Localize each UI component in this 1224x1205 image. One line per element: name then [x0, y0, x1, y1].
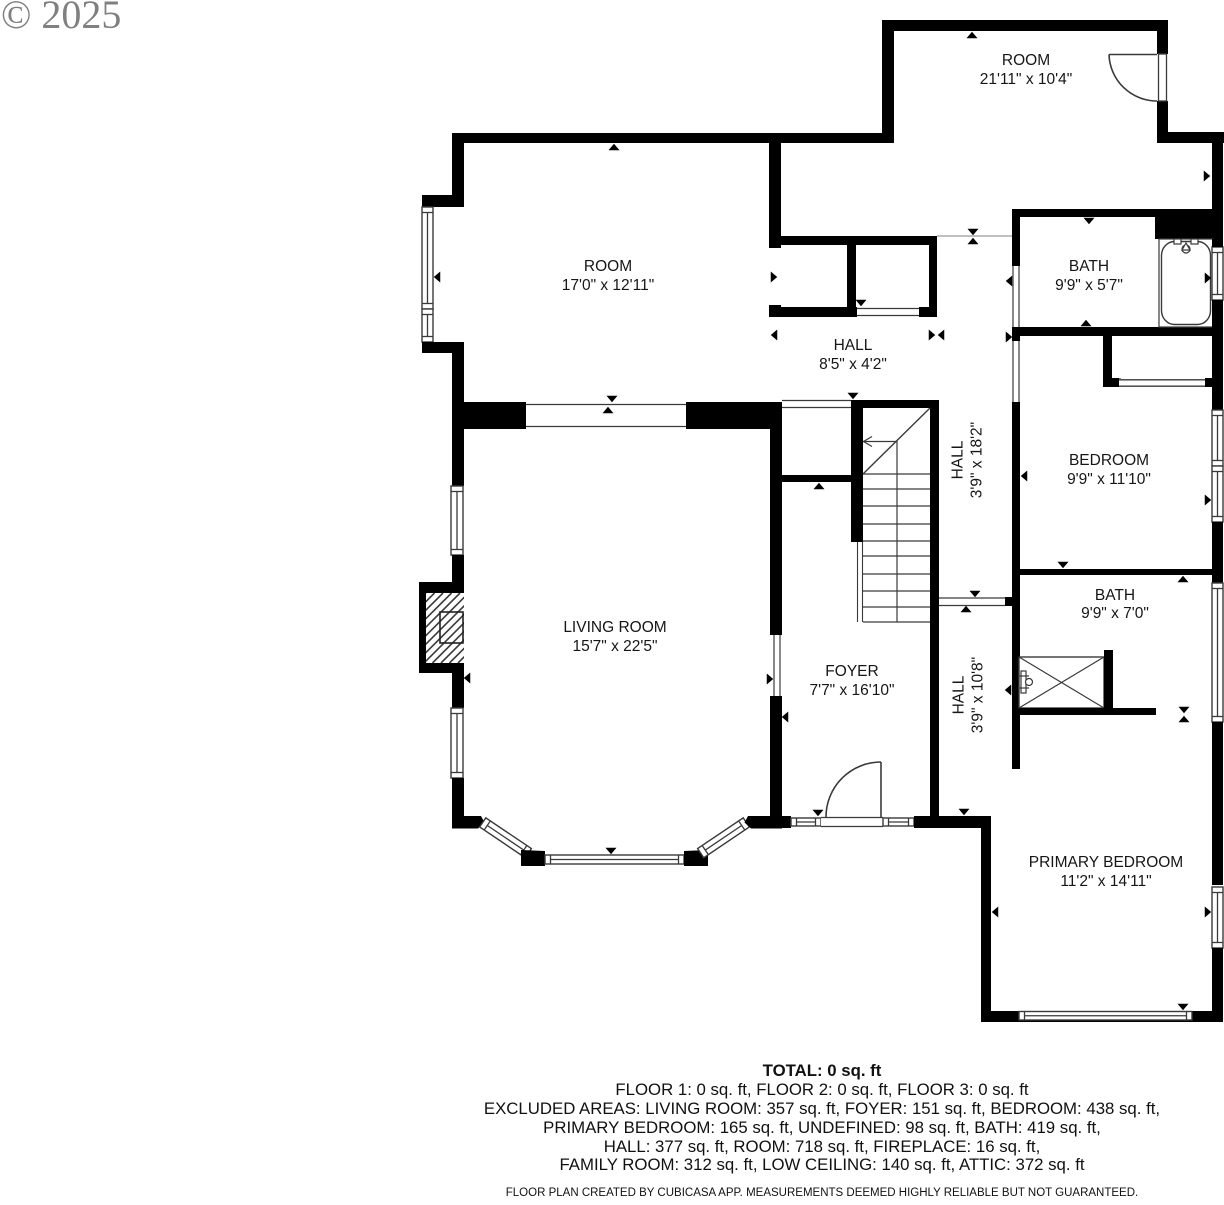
- svg-text:HALL: HALL: [834, 337, 873, 354]
- svg-text:3'9" x 10'8": 3'9" x 10'8": [970, 657, 987, 733]
- svg-text:PRIMARY BEDROOM: 165 sq. ft, U: PRIMARY BEDROOM: 165 sq. ft, UNDEFINED: …: [543, 1118, 1101, 1137]
- svg-text:EXCLUDED AREAS: LIVING ROOM: 3: EXCLUDED AREAS: LIVING ROOM: 357 sq. ft,…: [484, 1099, 1160, 1118]
- svg-text:PRIMARY BEDROOM: PRIMARY BEDROOM: [1029, 854, 1183, 871]
- svg-text:LIVING ROOM: LIVING ROOM: [563, 619, 666, 636]
- svg-text:FLOOR 1: 0 sq. ft, FLOOR 2: 0: FLOOR 1: 0 sq. ft, FLOOR 2: 0 sq. ft, FL…: [615, 1080, 1028, 1099]
- svg-text:FOYER: FOYER: [825, 663, 878, 680]
- svg-text:BATH: BATH: [1069, 258, 1109, 275]
- svg-text:17'0" x 12'11": 17'0" x 12'11": [562, 277, 654, 294]
- svg-text:BATH: BATH: [1095, 587, 1135, 604]
- svg-text:© 2025: © 2025: [1, 0, 121, 37]
- svg-text:HALL: HALL: [950, 440, 967, 479]
- svg-text:ROOM: ROOM: [584, 258, 632, 275]
- svg-text:FLOOR PLAN CREATED BY CUBICASA: FLOOR PLAN CREATED BY CUBICASA APP. MEAS…: [506, 1187, 1138, 1199]
- svg-text:HALL: HALL: [951, 675, 968, 714]
- svg-text:TOTAL: 0 sq. ft: TOTAL: 0 sq. ft: [763, 1061, 882, 1080]
- svg-text:11'2" x 14'11": 11'2" x 14'11": [1060, 873, 1151, 890]
- svg-text:8'5" x 4'2": 8'5" x 4'2": [819, 356, 887, 373]
- svg-text:BEDROOM: BEDROOM: [1069, 452, 1149, 469]
- svg-text:9'9" x 7'0": 9'9" x 7'0": [1081, 605, 1149, 622]
- svg-text:7'7" x 16'10": 7'7" x 16'10": [809, 682, 894, 699]
- svg-text:15'7" x 22'5": 15'7" x 22'5": [572, 638, 657, 655]
- svg-text:21'11" x 10'4": 21'11" x 10'4": [980, 71, 1072, 88]
- svg-text:HALL: 377 sq. ft, ROOM: 718 sq: HALL: 377 sq. ft, ROOM: 718 sq. ft, FIRE…: [604, 1137, 1041, 1156]
- svg-text:9'9" x 5'7": 9'9" x 5'7": [1055, 277, 1123, 294]
- svg-text:3'9" x 18'2": 3'9" x 18'2": [969, 422, 986, 498]
- svg-text:9'9" x 11'10": 9'9" x 11'10": [1067, 471, 1151, 488]
- svg-text:FAMILY ROOM: 312 sq. ft, LOW C: FAMILY ROOM: 312 sq. ft, LOW CEILING: 14…: [559, 1155, 1084, 1174]
- svg-text:ROOM: ROOM: [1002, 52, 1050, 69]
